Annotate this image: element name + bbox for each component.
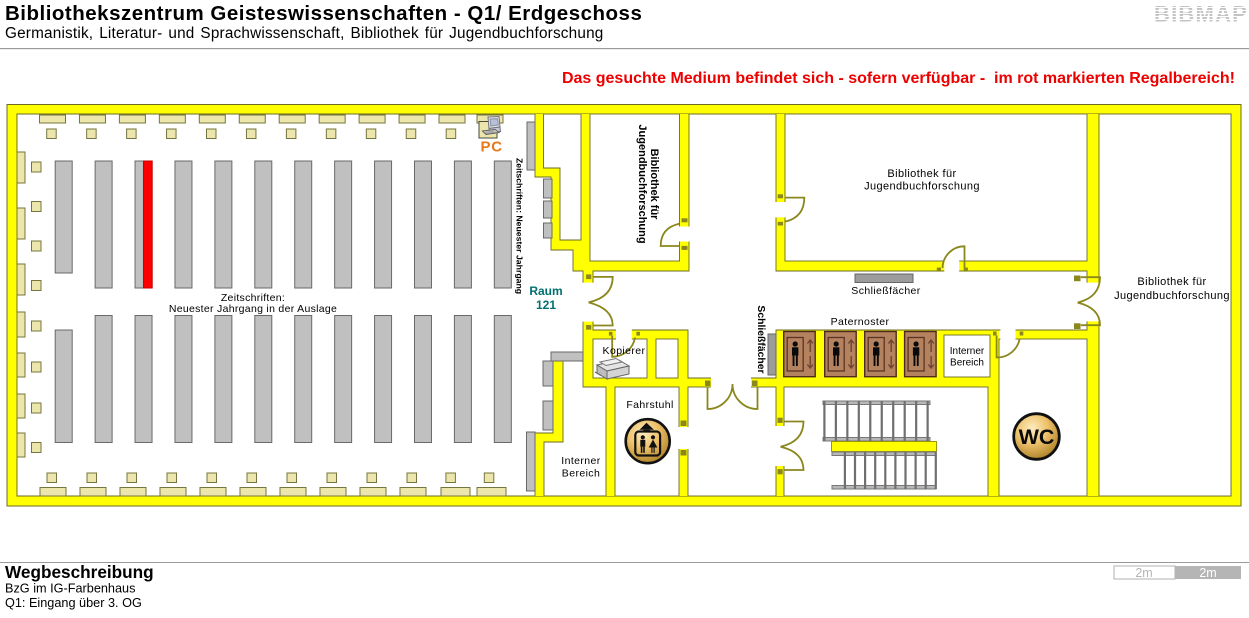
svg-text:Schließfächer: Schließfächer — [851, 285, 920, 297]
svg-text:Bibliothek für: Bibliothek für — [648, 149, 660, 221]
svg-text:Fahrstuhl: Fahrstuhl — [626, 399, 673, 411]
svg-text:Jugendbuchforschung: Jugendbuchforschung — [864, 181, 980, 193]
svg-text:Bibliothek für: Bibliothek für — [887, 168, 956, 180]
svg-text:Zeitschriften: Neuester Jahrga: Zeitschriften: Neuester Jahrgang — [515, 158, 525, 294]
svg-text:121: 121 — [536, 298, 556, 312]
svg-text:Bibliothekszentrum Geisteswiss: Bibliothekszentrum Geisteswissenschaften… — [5, 2, 642, 25]
svg-text:Jugendbuchforschung: Jugendbuchforschung — [1114, 290, 1230, 302]
svg-text:Bereich: Bereich — [950, 358, 984, 369]
svg-text:Interner: Interner — [950, 346, 985, 357]
svg-text:Q1: Eingang über 3. OG: Q1: Eingang über 3. OG — [5, 596, 142, 610]
svg-text:Germanistik, Literatur- und Sp: Germanistik, Literatur- und Sprachwissen… — [5, 25, 603, 42]
svg-text:Raum: Raum — [529, 284, 562, 298]
svg-text:Kopierer: Kopierer — [603, 345, 646, 357]
svg-text:Neuester Jahrgang in der Ausla: Neuester Jahrgang in der Auslage — [169, 303, 337, 315]
svg-text:Bibliothek für: Bibliothek für — [1137, 276, 1206, 288]
svg-text:Paternoster: Paternoster — [831, 316, 890, 328]
svg-text:Das gesuchte Medium befindet s: Das gesuchte Medium befindet sich - sofe… — [562, 70, 1235, 87]
svg-text:Jugendbuchforschung: Jugendbuchforschung — [636, 124, 648, 243]
svg-text:WC: WC — [1019, 425, 1055, 449]
svg-text:Bereich: Bereich — [562, 468, 600, 480]
svg-text:Wegbeschreibung: Wegbeschreibung — [5, 562, 154, 582]
svg-text:2m: 2m — [1135, 566, 1152, 580]
svg-text:BzG im IG-Farbenhaus: BzG im IG-Farbenhaus — [5, 582, 135, 596]
svg-text:Schließfächer: Schließfächer — [755, 305, 766, 373]
svg-text:PC: PC — [481, 139, 503, 156]
svg-text:2m: 2m — [1199, 566, 1216, 580]
svg-text:Interner: Interner — [561, 455, 600, 467]
